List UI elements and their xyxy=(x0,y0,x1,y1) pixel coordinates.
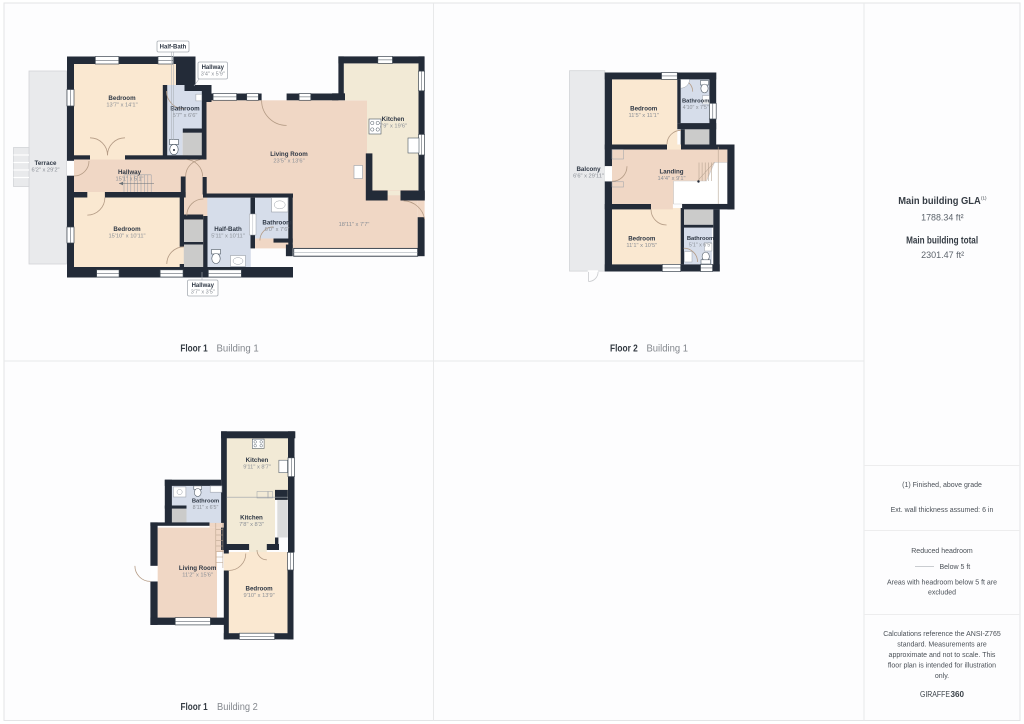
svg-text:only.: only. xyxy=(935,673,949,680)
svg-text:(1) Finished, above grade: (1) Finished, above grade xyxy=(902,482,982,489)
svg-text:Calculations reference the ANS: Calculations reference the ANSI-Z765 xyxy=(883,631,1001,638)
svg-text:6'2" x 29'2": 6'2" x 29'2" xyxy=(31,167,59,173)
svg-text:Kitchen: Kitchen xyxy=(382,116,405,123)
svg-text:Bedroom: Bedroom xyxy=(246,586,274,593)
svg-text:5'1" x 6'5": 5'1" x 6'5" xyxy=(689,242,712,248)
svg-text:Building 1: Building 1 xyxy=(217,343,259,355)
svg-text:excluded: excluded xyxy=(928,590,956,597)
svg-text:2301.47 ft²: 2301.47 ft² xyxy=(921,250,964,260)
svg-text:14'4" x 9'1": 14'4" x 9'1" xyxy=(657,176,685,182)
svg-text:6'0" x 7'6": 6'0" x 7'6" xyxy=(265,227,290,233)
svg-text:Building 2: Building 2 xyxy=(217,701,258,713)
svg-text:23'5" x 13'6": 23'5" x 13'6" xyxy=(273,158,304,164)
svg-text:Ext. wall thickness assumed: 6: Ext. wall thickness assumed: 6 in xyxy=(891,507,994,514)
svg-text:Hallway: Hallway xyxy=(192,283,215,289)
svg-text:Balcony: Balcony xyxy=(576,166,601,173)
svg-text:Bathroom: Bathroom xyxy=(170,106,200,113)
svg-text:Kitchen: Kitchen xyxy=(246,457,269,464)
svg-text:Bathroom: Bathroom xyxy=(262,220,292,227)
svg-text:Living Room: Living Room xyxy=(179,565,217,572)
svg-text:5'7" x 6'6": 5'7" x 6'6" xyxy=(173,113,198,119)
svg-text:6'6" x 29'11": 6'6" x 29'11" xyxy=(573,173,604,179)
svg-text:11'1" x 10'5": 11'1" x 10'5" xyxy=(626,243,657,249)
svg-text:11'2" x 15'6": 11'2" x 15'6" xyxy=(182,572,213,578)
svg-text:Bedroom: Bedroom xyxy=(628,236,656,243)
svg-text:Half-Bath: Half-Bath xyxy=(214,226,242,233)
svg-text:Floor 1: Floor 1 xyxy=(181,701,208,713)
svg-text:(1): (1) xyxy=(981,196,987,201)
svg-text:9'11" x 8'7": 9'11" x 8'7" xyxy=(243,464,271,470)
svg-text:floor plan is intended for ill: floor plan is intended for illustration xyxy=(888,663,996,670)
svg-text:approximate and not to scale.: approximate and not to scale. This xyxy=(889,652,996,659)
svg-text:1788.34 ft²: 1788.34 ft² xyxy=(921,213,964,223)
svg-text:8'11" x 6'5": 8'11" x 6'5" xyxy=(193,505,219,511)
svg-text:Landing: Landing xyxy=(659,169,683,176)
svg-text:3'7" x 3'5": 3'7" x 3'5" xyxy=(191,290,215,296)
svg-text:7'9" x 19'6": 7'9" x 19'6" xyxy=(379,123,407,129)
svg-text:9'10" x 13'9": 9'10" x 13'9" xyxy=(243,593,274,599)
svg-text:Bathroom: Bathroom xyxy=(192,499,219,505)
svg-text:GIRAFFE: GIRAFFE xyxy=(920,689,950,699)
svg-text:360: 360 xyxy=(951,689,965,699)
svg-text:Floor 2: Floor 2 xyxy=(610,343,638,355)
svg-text:Bedroom: Bedroom xyxy=(108,95,136,102)
svg-text:Below 5 ft: Below 5 ft xyxy=(940,564,971,571)
svg-text:Terrace: Terrace xyxy=(35,160,57,167)
svg-text:Bathroom: Bathroom xyxy=(687,236,714,242)
svg-text:Hallway: Hallway xyxy=(202,65,225,71)
svg-text:11'5" x 11'1": 11'5" x 11'1" xyxy=(629,113,659,119)
svg-text:15'1" x 5'1": 15'1" x 5'1" xyxy=(115,176,143,182)
svg-text:3'4" x 5'9": 3'4" x 5'9" xyxy=(201,72,225,78)
svg-text:Bedroom: Bedroom xyxy=(113,226,141,233)
svg-text:15'10" x 10'11": 15'10" x 10'11" xyxy=(108,233,145,239)
svg-text:Living Room: Living Room xyxy=(270,151,308,158)
svg-text:Main building total: Main building total xyxy=(906,236,978,247)
svg-text:Areas with headroom below 5 ft: Areas with headroom below 5 ft are xyxy=(887,580,997,587)
svg-text:Half-Bath: Half-Bath xyxy=(160,45,187,51)
svg-text:13'7" x 14'1": 13'7" x 14'1" xyxy=(106,102,137,108)
svg-text:Reduced headroom: Reduced headroom xyxy=(911,548,973,555)
svg-text:Hallway: Hallway xyxy=(118,169,142,176)
svg-text:7'8" x 8'3": 7'8" x 8'3" xyxy=(239,522,264,528)
svg-text:Bathroom: Bathroom xyxy=(682,99,709,105)
svg-text:Kitchen: Kitchen xyxy=(240,515,263,522)
svg-text:Main building GLA: Main building GLA xyxy=(898,196,981,207)
svg-text:18'11" x 7'7": 18'11" x 7'7" xyxy=(339,222,370,228)
svg-text:standard. Measurements are: standard. Measurements are xyxy=(897,642,987,649)
svg-text:4'10" x 7'5": 4'10" x 7'5" xyxy=(683,105,709,111)
svg-text:Bedroom: Bedroom xyxy=(630,106,658,113)
svg-text:Building 1: Building 1 xyxy=(647,343,689,355)
svg-text:Floor 1: Floor 1 xyxy=(180,343,207,355)
svg-text:5'11" x 10'11": 5'11" x 10'11" xyxy=(211,233,245,239)
